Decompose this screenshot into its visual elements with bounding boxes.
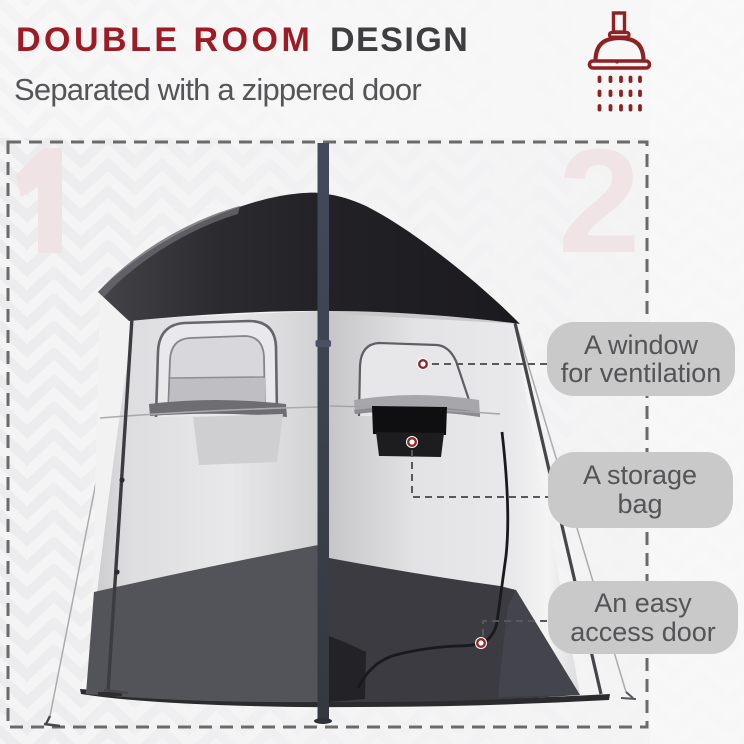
svg-text:2: 2	[558, 119, 640, 284]
svg-text:A window: A window	[584, 330, 699, 360]
svg-text:bag: bag	[617, 489, 662, 519]
svg-text:DESIGN: DESIGN	[330, 21, 469, 59]
svg-text:for ventilation: for ventilation	[561, 358, 722, 388]
svg-text:An easy: An easy	[594, 588, 692, 618]
svg-text:A storage: A storage	[583, 460, 697, 490]
svg-text:DOUBLE ROOM: DOUBLE ROOM	[16, 21, 313, 59]
svg-text:access door: access door	[570, 617, 716, 647]
svg-text:Separated with a zippered door: Separated with a zippered door	[14, 72, 421, 107]
